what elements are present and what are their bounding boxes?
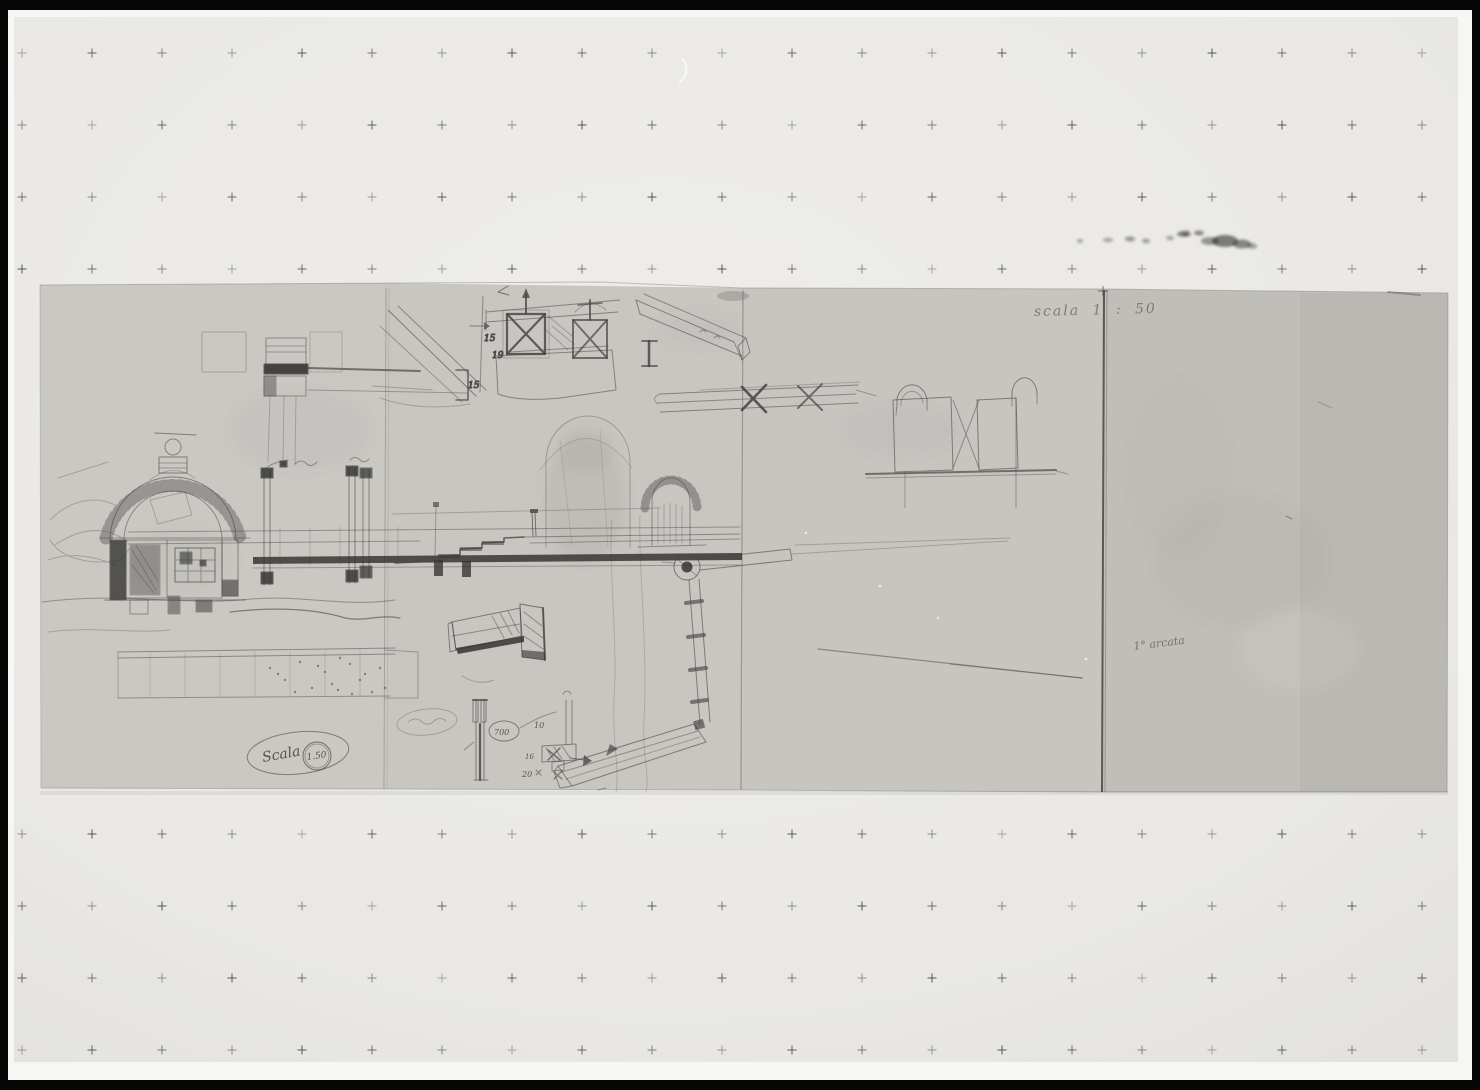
dim-20: 20 — [521, 770, 532, 779]
paper-panel-3 — [742, 288, 1104, 792]
paper-shadow — [40, 791, 1448, 795]
dim-19: 19 — [492, 351, 504, 361]
sketch-strip — [40, 282, 1448, 795]
photo-scene: Scala 1.50 15 19 15 — [0, 0, 1480, 1090]
dim-16: 16 — [525, 753, 534, 761]
paper-shading — [1300, 293, 1448, 792]
dim-700: 700 — [494, 728, 509, 737]
dim-10: 10 — [534, 721, 544, 730]
dim-15b: 15 — [468, 381, 480, 391]
dim-15a: 15 — [484, 334, 496, 344]
scale-note-top: scala 1 : 50 — [1034, 301, 1157, 320]
archival-photograph: Scala 1.50 15 19 15 — [0, 0, 1480, 1090]
